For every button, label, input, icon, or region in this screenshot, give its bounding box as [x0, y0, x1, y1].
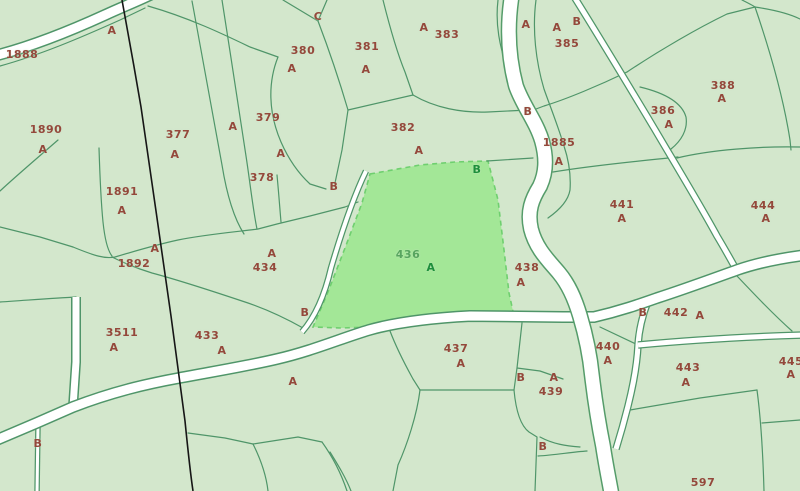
- river: [509, 0, 612, 491]
- map-canvas[interactable]: 1888A1890A1891AA18923511A377AA379A378380…: [0, 0, 800, 491]
- cadastral-map-svg: [0, 0, 800, 491]
- highlighted-parcel-436[interactable]: [313, 161, 514, 328]
